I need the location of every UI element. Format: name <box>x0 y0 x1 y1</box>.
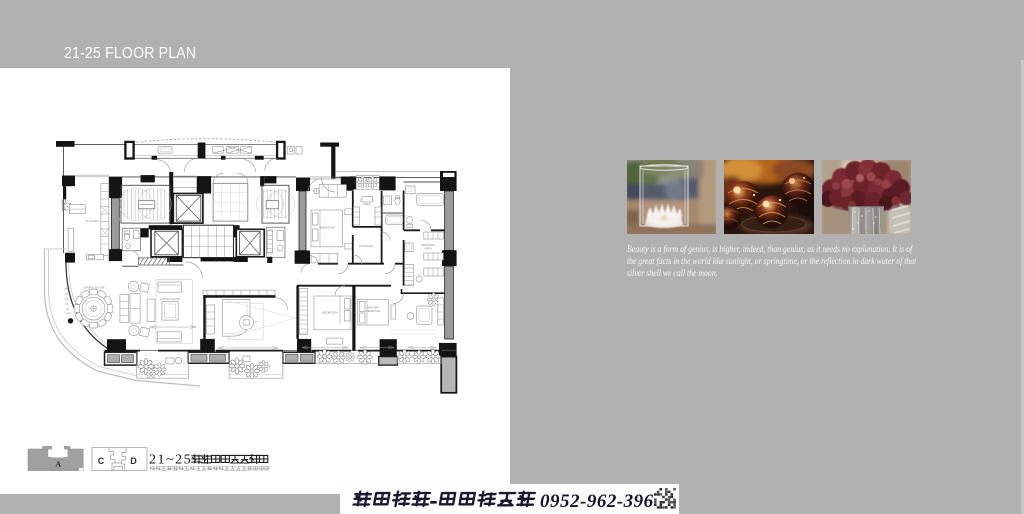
svg-text:AREA: AREA <box>363 202 371 206</box>
svg-text:MASTER: MASTER <box>367 306 378 310</box>
svg-text:DRESSING: DRESSING <box>421 243 435 247</box>
svg-text:AREA: AREA <box>424 247 432 251</box>
svg-text:BEDROOM: BEDROOM <box>319 226 335 230</box>
svg-text:BEDROOM: BEDROOM <box>366 309 381 313</box>
svg-text:BEDROOM: BEDROOM <box>322 311 338 315</box>
svg-text:KITCHEN: KITCHEN <box>85 219 98 223</box>
svg-text:LIVING ROOM: LIVING ROOM <box>160 297 181 301</box>
svg-text:STORAGE: STORAGE <box>359 244 374 248</box>
